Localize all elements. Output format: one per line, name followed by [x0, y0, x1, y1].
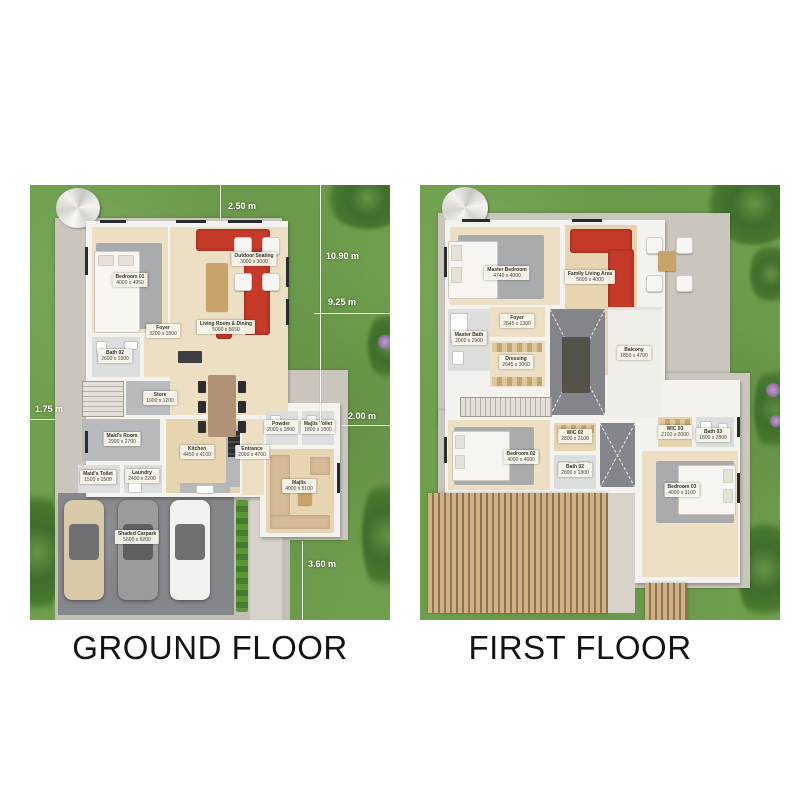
window [85, 431, 88, 453]
room-label: Majlis Toilet1800 x 1800 [301, 420, 335, 434]
pillow [98, 255, 114, 266]
dining-chair [238, 401, 246, 413]
pillow [723, 469, 733, 483]
car-gray [118, 500, 158, 600]
window [737, 417, 740, 437]
dimension-label: 2.00 m [348, 411, 376, 421]
window [286, 257, 289, 287]
room-label: Powder2000 x 1800 [264, 420, 298, 434]
window [228, 220, 262, 223]
room-label: Living Room & Dining5000 x 5650 [197, 320, 255, 334]
dimension-line [314, 313, 390, 314]
dining-chair [198, 401, 206, 413]
room-label: Balcony1850 x 4700 [617, 346, 651, 360]
room-label: Laundry2400 x 2200 [125, 469, 159, 483]
room-label: Bath 022600 x 1900 [98, 349, 132, 363]
window [176, 220, 206, 223]
dimension-line [220, 185, 221, 225]
dimension-label: 9.25 m [328, 297, 356, 307]
patio-chair [676, 275, 693, 292]
room-label: Foyer2645 x 1300 [500, 314, 534, 328]
dimension-label: 1.75 m [35, 404, 63, 414]
dimension-line [30, 419, 56, 420]
walkway-strip [608, 493, 635, 613]
room-label: Outdoor Seating3000 x 3000 [231, 252, 276, 266]
room-label: Maid's Room2900 x 2700 [104, 432, 141, 446]
window [286, 299, 289, 325]
sofa-red [196, 229, 270, 251]
hedge [236, 500, 248, 612]
room-label: Maid's Toilet1500 x 1500 [80, 470, 116, 484]
dimension-label: 3.60 m [308, 559, 336, 569]
dimension-line [302, 541, 303, 620]
room-label: Majlis4000 x 5100 [282, 479, 316, 493]
pillow [451, 245, 462, 261]
flower-icon [770, 415, 780, 427]
car-glass [69, 524, 99, 560]
majlis-chair [310, 457, 330, 475]
car-glass [175, 524, 205, 560]
patio-chair [676, 237, 693, 254]
window [444, 437, 447, 463]
staircase [460, 397, 552, 417]
wardrobe [492, 377, 542, 386]
pillow [723, 489, 733, 503]
first-floor-title: FIRST FLOOR [400, 629, 760, 667]
first-floor-plan: Master Bedroom4740 x 4000 Family Living … [420, 185, 780, 620]
room-label: WIC 022800 x 2100 [558, 429, 592, 443]
room-label: Dressing2645 x 3060 [499, 355, 533, 369]
floor-plan-sheet: 2.50 m 10.90 m 9.25 m 2.00 m 1.75 m 3.60… [0, 0, 800, 800]
ground-floor-title: GROUND FLOOR [20, 629, 400, 667]
dimension-line [342, 425, 390, 426]
car-beige [64, 500, 104, 600]
dimension-label: 2.50 m [228, 201, 256, 211]
flower-icon [378, 335, 390, 349]
dimension-label: 10.90 m [326, 251, 359, 261]
pillow [455, 455, 465, 469]
room-label: Bedroom 024000 x 4600 [504, 450, 539, 464]
wardrobe [492, 343, 542, 352]
room-label: Bath 022800 x 1800 [558, 463, 592, 477]
patio-chair [646, 275, 663, 292]
dining-chair [198, 381, 206, 393]
room-label: Foyer3200 x 1800 [146, 324, 180, 338]
staircase [82, 381, 124, 417]
room-label: Entrance2000 x 4700 [235, 445, 269, 459]
room-label: WIC 032100 x 2000 [658, 425, 692, 439]
car-white [170, 500, 210, 600]
window [337, 463, 340, 493]
flower-icon [766, 383, 780, 397]
dining-chair [238, 421, 246, 433]
majlis-sofa [270, 515, 330, 529]
window [85, 247, 88, 275]
room-label: Bedroom 034000 x 3100 [665, 483, 700, 497]
room-label: Master Bath2000 x 2900 [452, 331, 487, 345]
toilet [452, 351, 464, 365]
window [444, 247, 447, 277]
patio-chair [262, 273, 280, 291]
dining-chair [198, 421, 206, 433]
pillow [451, 267, 462, 283]
window [100, 220, 126, 223]
balcony-rail [608, 307, 662, 310]
room-label: Shaded Carpark5600 x 6200 [115, 530, 159, 544]
window [462, 219, 490, 222]
pillow [455, 435, 465, 449]
dining-chair [238, 381, 246, 393]
dining-table [208, 375, 236, 437]
room-label: Kitchen4450 x 4100 [180, 445, 214, 459]
window [737, 473, 740, 503]
window [572, 219, 602, 222]
room-label: Bedroom 014000 x 4950 [113, 273, 148, 287]
patio-table [658, 251, 676, 271]
room-balcony [608, 307, 662, 417]
pergola-slats-small [645, 583, 687, 620]
coffee-table [206, 263, 228, 311]
sink [196, 485, 214, 494]
patio-chair [234, 273, 252, 291]
room-label: Bath 031800 x 2800 [696, 428, 730, 442]
room-label: Master Bedroom4740 x 4000 [484, 266, 529, 280]
dimension-line [320, 185, 321, 425]
room-label: Store1900 x 1200 [143, 391, 177, 405]
pergola-slats [428, 493, 608, 613]
pillow [118, 255, 134, 266]
sideboard [178, 351, 202, 363]
ground-floor-plan: 2.50 m 10.90 m 9.25 m 2.00 m 1.75 m 3.60… [30, 185, 390, 620]
room-label: Family Living Area5600 x 4000 [565, 270, 615, 284]
dining-table-below [562, 337, 590, 393]
